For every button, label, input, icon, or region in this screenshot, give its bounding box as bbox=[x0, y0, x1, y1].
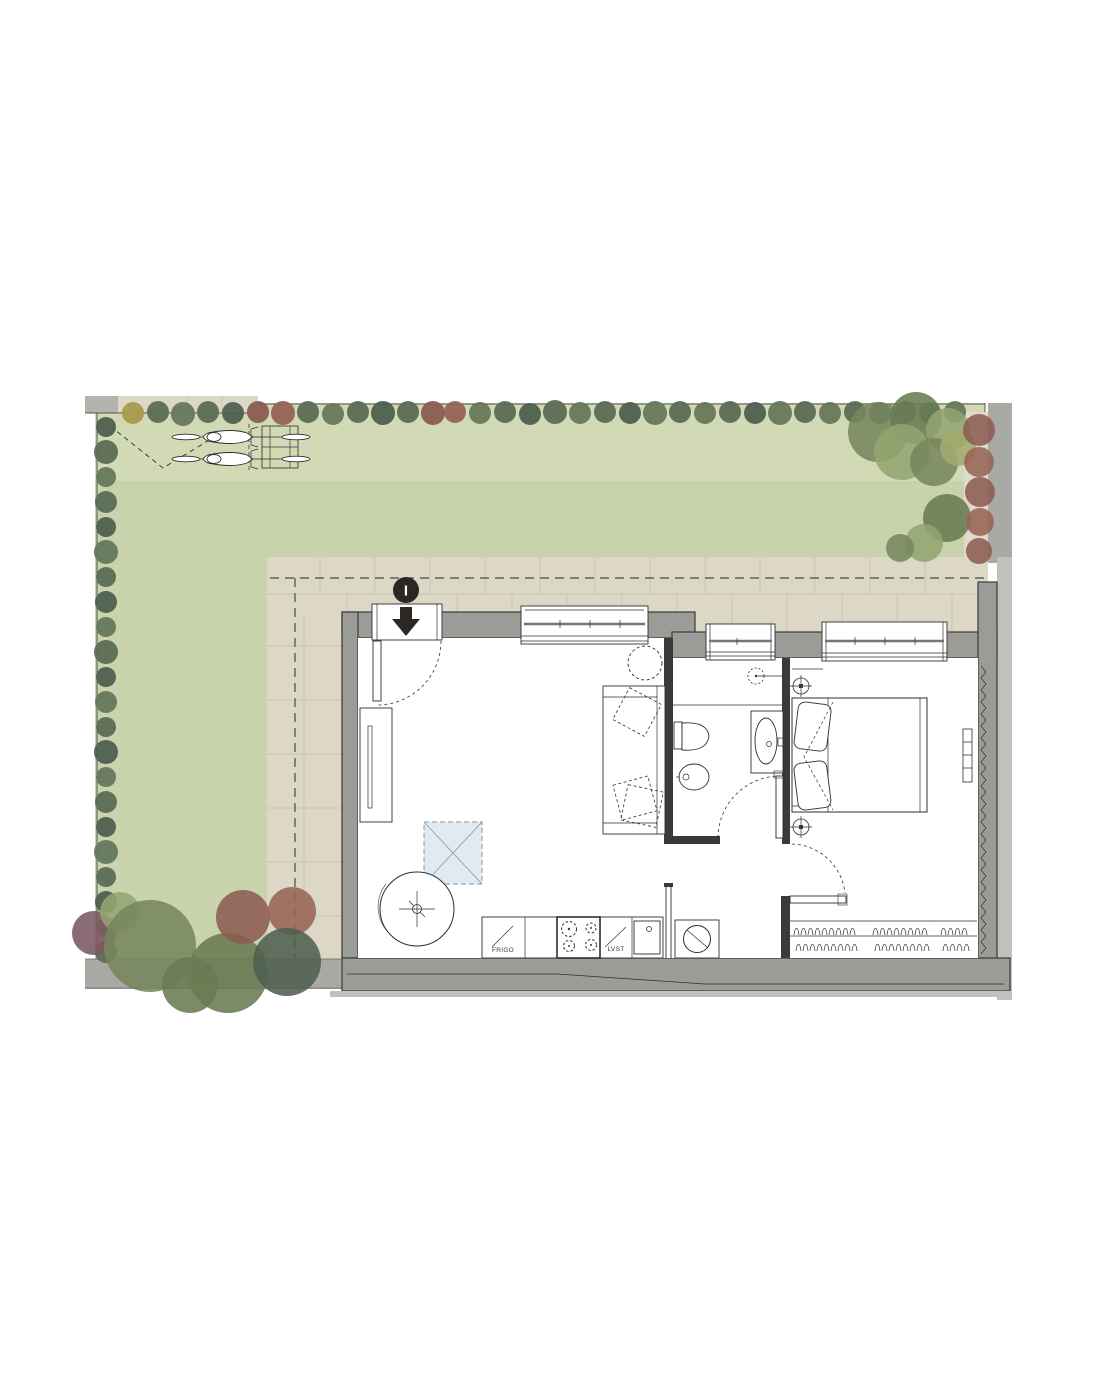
bedroom-door-leaf bbox=[790, 896, 846, 903]
wardrobe-cabinet bbox=[360, 708, 392, 822]
exterior-wall-right bbox=[978, 582, 997, 974]
bed-pillow bbox=[793, 701, 831, 752]
kitchen-sink bbox=[634, 921, 660, 954]
exterior-wall-left bbox=[342, 612, 358, 958]
bed-pillow bbox=[793, 760, 831, 811]
bedroom-door-opening bbox=[782, 844, 790, 896]
bathroom-door-leaf bbox=[776, 776, 783, 838]
double-bed bbox=[792, 698, 927, 812]
skylight-shaft bbox=[424, 822, 482, 884]
washing-machine bbox=[675, 920, 719, 958]
entrance-door-leaf bbox=[373, 641, 381, 701]
dishwasher-label: LVST bbox=[608, 946, 625, 953]
exterior-wall-bottom bbox=[342, 958, 1010, 991]
boundary-wall-right-lower bbox=[997, 557, 1012, 1000]
toilet bbox=[674, 722, 709, 750]
partition-bathroom-bottom bbox=[664, 836, 720, 844]
fridge-label: FRIGO bbox=[492, 947, 514, 954]
bedroom-window bbox=[822, 622, 947, 661]
kitchen-counter: FRIGO LVST bbox=[482, 917, 663, 958]
site-plan: I FRIGO bbox=[0, 0, 1097, 1377]
sofa bbox=[603, 686, 665, 834]
floor-plan-canvas: I FRIGO bbox=[0, 0, 1097, 1377]
entrance-marker-label: I bbox=[404, 583, 408, 600]
living-room-window bbox=[521, 606, 648, 644]
washbasin bbox=[751, 711, 783, 773]
bathroom-window bbox=[706, 624, 775, 660]
partition-hall-bedroom-stub bbox=[781, 896, 790, 958]
